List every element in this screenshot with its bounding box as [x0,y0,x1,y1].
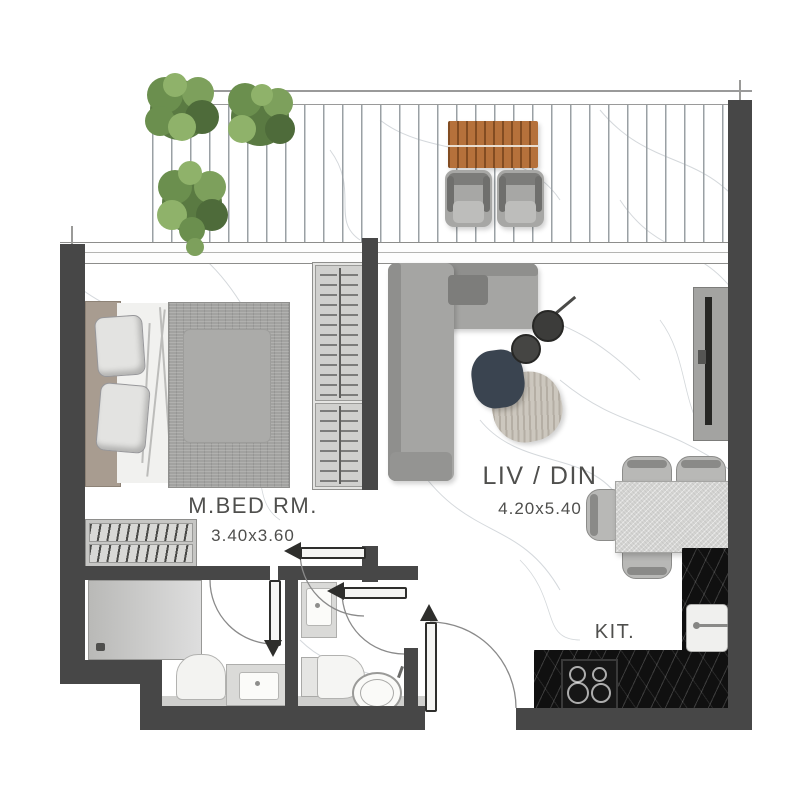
floor-plan: M.BED RM. 3.40x3.60 LIV / DIN 4.20x5.40 … [0,0,800,800]
entrance-door-leaf [425,622,437,712]
bathroom-door-arrow-icon [264,640,282,657]
living-dining-label: LIV / DIN [450,462,630,491]
master-bedroom-dimensions: 3.40x3.60 [163,526,343,546]
wc-door-leaf [343,587,407,599]
master-bedroom-label: M.BED RM. [163,493,343,519]
wc-door-arrow-icon [327,582,344,600]
bedroom-door-leaf [300,547,366,559]
door-swing-arcs [0,0,800,800]
entrance-door-arrow-icon [420,604,438,621]
bathroom-door-leaf [269,580,281,646]
kitchen-label: KIT. [580,621,650,644]
living-dining-dimensions: 4.20x5.40 [450,499,630,519]
